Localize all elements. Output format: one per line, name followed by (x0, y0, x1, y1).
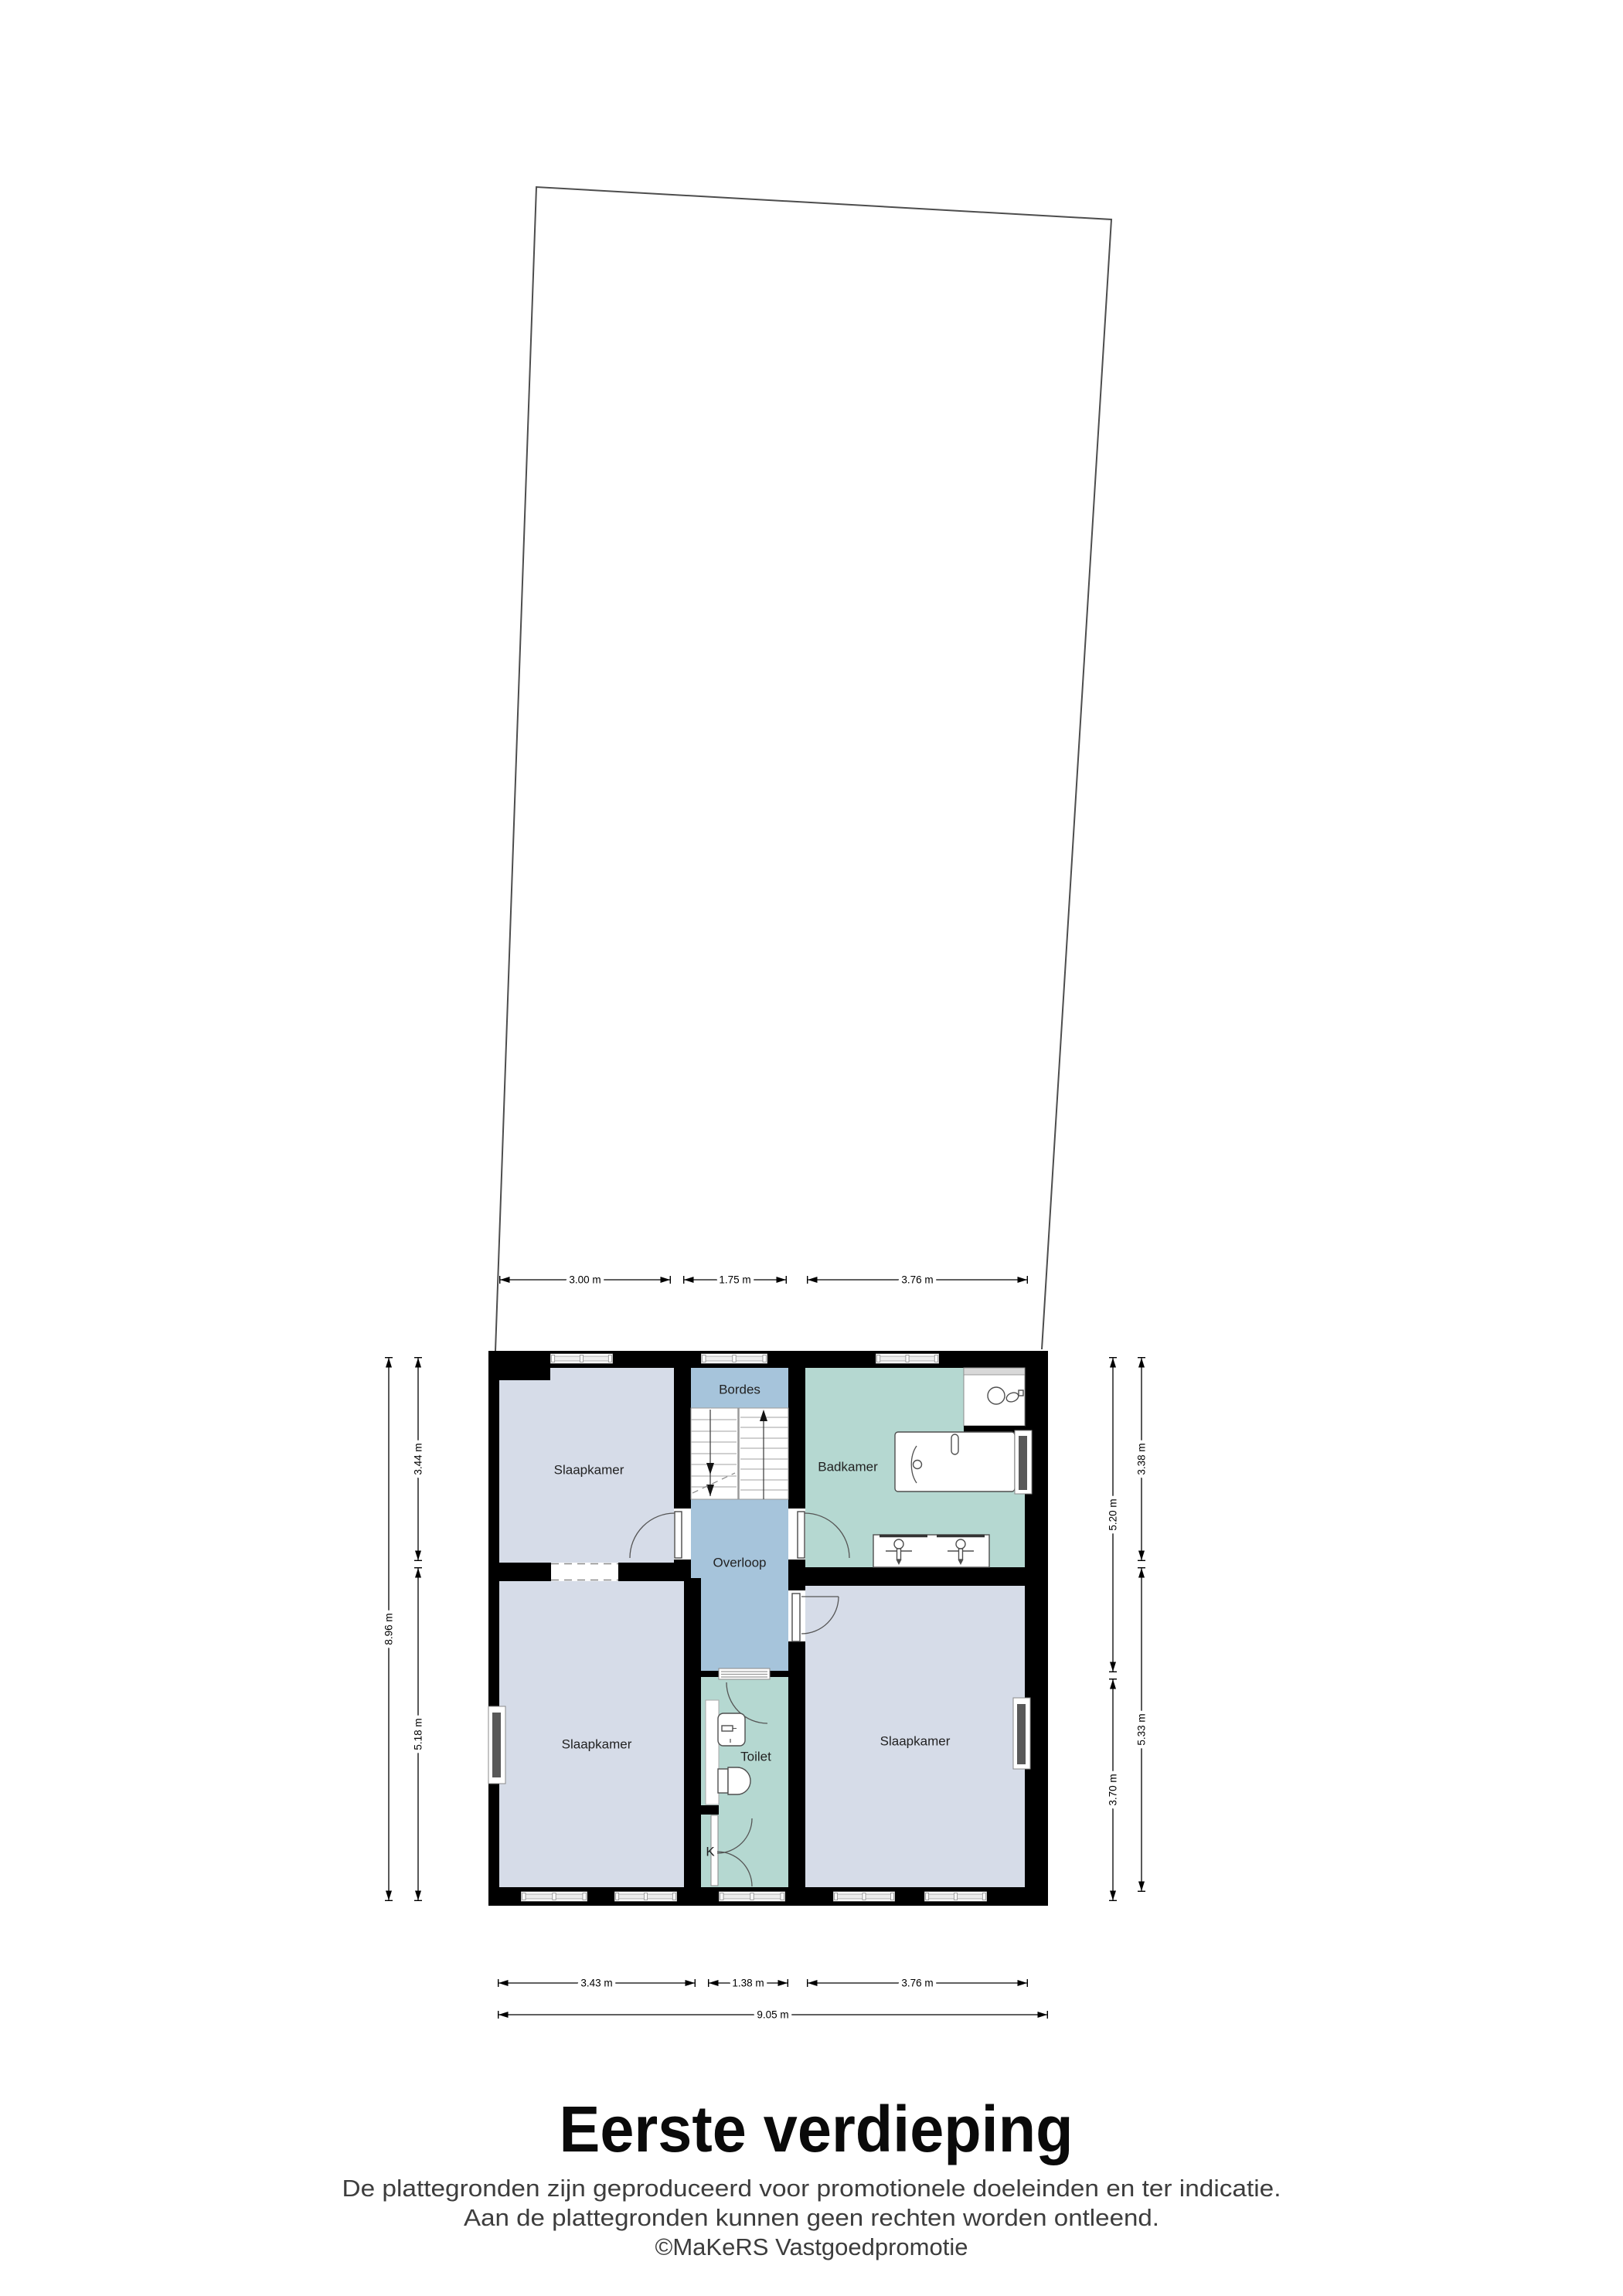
dim-left-outer: 8.96 m (383, 1613, 395, 1645)
room-label-toilet: Toilet (740, 1750, 771, 1764)
window-left-slaapkamer (488, 1706, 505, 1784)
floor-plan: Slaapkamer Bordes Badkamer Overloop Slaa… (488, 1351, 1048, 1906)
wall-opening-dashed (551, 1563, 618, 1581)
wall-stub (701, 1805, 719, 1815)
dim-bottom-1: 3.43 m (580, 1978, 612, 1989)
staircase (691, 1408, 788, 1499)
dim-right-inner-top: 5.20 m (1108, 1498, 1119, 1530)
window-top-badkamer (876, 1354, 939, 1364)
room-label-kast: K (706, 1845, 715, 1859)
dim-top-3: 3.76 m (901, 1274, 933, 1286)
dim-right-outer-top: 3.38 m (1136, 1443, 1148, 1475)
room-label-bordes: Bordes (719, 1383, 760, 1397)
window-top-slaapkamer (550, 1354, 613, 1364)
window-bottom-1 (521, 1892, 587, 1902)
disclaimer-line-1: De plattegronden zijn geproduceerd voor … (342, 2175, 1281, 2202)
window-bottom-5 (924, 1892, 987, 1902)
plot-boundary-line (495, 187, 1111, 1351)
niche-toilet-icon (988, 1387, 1005, 1404)
dim-bottom-total: 9.05 m (757, 2009, 788, 2021)
toilet-bowl (718, 1767, 750, 1794)
window-top-bordes (701, 1354, 767, 1364)
room-label-slaapkamer-tl: Slaapkamer (554, 1463, 624, 1478)
toilet-shelf (706, 1700, 719, 1804)
dim-right-inner-bottom: 3.70 m (1108, 1774, 1119, 1805)
window-right-slaapkamer (1013, 1698, 1030, 1769)
bathtub (895, 1432, 1015, 1492)
room-label-badkamer: Badkamer (818, 1460, 878, 1475)
room-label-overloop: Overloop (713, 1556, 767, 1570)
copyright-line: ©MaKeRS Vastgoedpromotie (655, 2233, 968, 2260)
footer: Eerste verdieping De plattegronden zijn … (342, 2093, 1281, 2260)
dim-right-outer-bottom: 5.33 m (1136, 1713, 1148, 1745)
bathtub-tap-icon (951, 1434, 958, 1454)
vanity-double-sink (873, 1535, 989, 1567)
floorplan-page: Slaapkamer Bordes Badkamer Overloop Slaa… (0, 0, 1623, 2296)
chimney-block (488, 1351, 550, 1380)
window-bottom-2 (614, 1892, 677, 1902)
room-label-slaapkamer-br: Slaapkamer (880, 1734, 951, 1749)
room-overloop-lower (701, 1578, 788, 1671)
disclaimer-line-2: Aan de plattegronden kunnen geen rechten… (464, 2204, 1159, 2231)
dim-top-2: 1.75 m (719, 1274, 750, 1286)
dim-bottom-3: 3.76 m (901, 1978, 933, 1989)
room-label-slaapkamer-bl: Slaapkamer (562, 1737, 632, 1752)
dim-bottom-2: 1.38 m (732, 1978, 764, 1989)
window-bottom-4 (833, 1892, 895, 1902)
room-slaapkamer-bottom-left (499, 1581, 684, 1887)
bathroom-niche (964, 1368, 1025, 1426)
page-title: Eerste verdieping (560, 2093, 1073, 2165)
window-bottom-3 (719, 1892, 785, 1902)
dim-left-top: 3.44 m (413, 1443, 424, 1475)
dim-top-1: 3.00 m (569, 1274, 601, 1286)
window-right-badkamer (1015, 1430, 1032, 1494)
floor-plan-svg: Slaapkamer Bordes Badkamer Overloop Slaa… (0, 0, 1623, 2296)
dim-left-bottom: 5.18 m (413, 1718, 424, 1750)
